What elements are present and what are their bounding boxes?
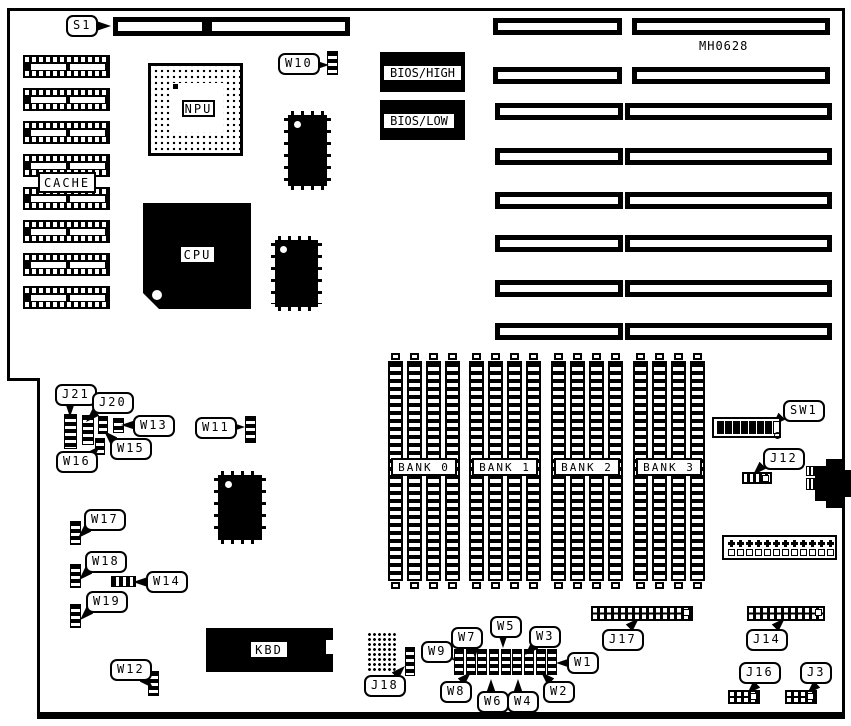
jumper-block: [477, 649, 487, 675]
simm-tab: [429, 353, 438, 360]
dip-chip: [23, 220, 110, 243]
bank-label: BANK 0: [391, 458, 457, 476]
dip-pins: [25, 71, 108, 76]
simm-tab: [510, 353, 519, 360]
callout-pointer: [97, 20, 111, 32]
sw1-switch-cell: [717, 421, 724, 434]
power-pin: [764, 540, 771, 547]
callout-w15: W15: [110, 438, 152, 460]
dip-pins: [25, 203, 108, 208]
dip-pins: [25, 302, 108, 307]
dip-pins: [25, 255, 108, 260]
power-pad: [737, 549, 744, 556]
callout-w10: W10: [278, 53, 320, 75]
dip-pins: [25, 104, 108, 109]
sw1-switch-cell: [741, 421, 748, 434]
callout-w9: W9: [421, 641, 453, 663]
sw1-switch-cell: [749, 421, 756, 434]
header-j14: [747, 606, 825, 621]
simm-tab: [573, 582, 582, 589]
pin1-marker: [683, 609, 690, 616]
callout-w17: W17: [84, 509, 126, 531]
power-pad: [764, 549, 771, 556]
din-pin-block: [806, 466, 815, 476]
callout-w14: W14: [146, 571, 188, 593]
motherboard-diagram: MH0628 NPU CPU BIOS/HIGH BIOS/LOW CACHE: [0, 0, 851, 726]
jumper-block: [64, 414, 77, 449]
bank-label: BANK 3: [636, 458, 702, 476]
dip-slot: [31, 163, 66, 169]
dip-pins: [25, 288, 108, 293]
dip-pins: [25, 137, 108, 142]
dip-slot: [70, 130, 105, 136]
callout-j14: J14: [746, 629, 788, 651]
callout-j12: J12: [763, 448, 805, 470]
simm-tab: [529, 353, 538, 360]
expansion-slot-bar: [625, 192, 832, 209]
dip-slot: [31, 229, 66, 235]
jumper-block: [70, 521, 81, 545]
simm-tab: [448, 353, 457, 360]
keyboard-din-connector: [845, 470, 851, 497]
expansion-slot-bar: [625, 235, 832, 252]
dip-slot: [70, 262, 105, 268]
sw1-switch-cell: [757, 421, 764, 434]
simm-tab: [410, 582, 419, 589]
callout-w18: W18: [85, 551, 127, 573]
bank-label: BANK 1: [472, 458, 538, 476]
expansion-slot-bar: [625, 103, 832, 120]
expansion-slot-bar: [625, 280, 832, 297]
jumper-block: [327, 51, 338, 75]
header-j3: [785, 690, 817, 704]
power-pin: [773, 540, 780, 547]
expansion-slot-bar: [632, 67, 830, 84]
callout-j3: J3: [800, 662, 832, 684]
expansion-slot-bar: [493, 18, 622, 35]
power-pad: [746, 549, 753, 556]
bank-label: BANK 2: [554, 458, 620, 476]
power-pin: [782, 540, 789, 547]
callout-w1: W1: [567, 652, 599, 674]
dip-pins: [25, 269, 108, 274]
simm-tab: [429, 582, 438, 589]
simm-tab: [554, 582, 563, 589]
expansion-slot-bar: [625, 148, 832, 165]
simm-tab: [636, 353, 645, 360]
dip-slot: [31, 196, 66, 202]
callout-w19: W19: [86, 591, 128, 613]
callout-j18: J18: [364, 675, 406, 697]
callout-w6: W6: [477, 691, 509, 713]
expansion-slot-bar: [493, 67, 622, 84]
sw1-switch-cell: [765, 421, 772, 434]
dip-chip: [23, 55, 110, 78]
generated-components: BANK 0BANK 1BANK 2BANK 3S1W10J21J20W13W1…: [0, 0, 851, 726]
jumper-block: [70, 604, 81, 628]
callout-j20: J20: [92, 392, 134, 414]
jumper-block: [113, 418, 124, 433]
dip-slot: [70, 64, 105, 70]
simm-tab: [573, 353, 582, 360]
jumper-block: [111, 576, 136, 587]
sw1-switch-cell: [725, 421, 732, 434]
dip-switch-sw1: [712, 417, 781, 438]
expansion-slot-bar: [495, 323, 623, 340]
expansion-slot-bar: [495, 235, 623, 252]
callout-j21: J21: [55, 384, 97, 406]
power-pad: [800, 549, 807, 556]
keyboard-din-connector: [815, 466, 829, 501]
callout-w11: W11: [195, 417, 237, 439]
sw1-dot: [774, 432, 781, 439]
callout-w12: W12: [110, 659, 152, 681]
header-j12: [742, 472, 772, 484]
expansion-slot-bar: [625, 323, 832, 340]
simm-tab: [391, 353, 400, 360]
power-pin: [746, 540, 753, 547]
header-j16: [728, 690, 760, 704]
simm-tab: [674, 582, 683, 589]
dip-slot: [31, 262, 66, 268]
power-pin: [737, 540, 744, 547]
callout-j17: J17: [602, 629, 644, 651]
power-pin: [800, 540, 807, 547]
dip-slot: [31, 130, 66, 136]
simm-tab: [491, 353, 500, 360]
power-pin: [809, 540, 816, 547]
callout-w2: W2: [543, 681, 575, 703]
dip-chip: [23, 253, 110, 276]
expansion-slot-bar: [495, 148, 623, 165]
dip-chip: [23, 286, 110, 309]
power-connector: [722, 535, 837, 560]
expansion-slot-bar: [632, 18, 830, 35]
power-pad: [827, 549, 834, 556]
simm-tab: [554, 353, 563, 360]
power-pin: [827, 540, 834, 547]
power-pad: [728, 549, 735, 556]
sw1-switch-cell: [733, 421, 740, 434]
jumper-block: [405, 647, 415, 676]
dip-slot: [70, 229, 105, 235]
callout-w13: W13: [133, 415, 175, 437]
dip-slot: [70, 295, 105, 301]
expansion-slot-bar: [495, 103, 623, 120]
simm-bank: BANK 3: [632, 353, 709, 589]
power-pad: [782, 549, 789, 556]
dip-chip: [23, 88, 110, 111]
cache-label: CACHE: [38, 172, 96, 193]
dip-pins: [25, 90, 108, 95]
power-pin: [728, 540, 735, 547]
callout-w8: W8: [440, 681, 472, 703]
power-pad: [773, 549, 780, 556]
power-pad: [809, 549, 816, 556]
jumper-block: [454, 649, 464, 675]
simm-tab: [529, 582, 538, 589]
jumper-block: [98, 416, 108, 434]
simm-tab: [611, 353, 620, 360]
power-pad: [818, 549, 825, 556]
dip-pins: [25, 57, 108, 62]
simm-bank: BANK 2: [550, 353, 627, 589]
callout-w16: W16: [56, 451, 98, 473]
dip-slot: [70, 196, 105, 202]
dip-slot: [31, 97, 66, 103]
callout-w5: W5: [490, 616, 522, 638]
expansion-slot-bar: [495, 192, 623, 209]
simm-tab: [472, 353, 481, 360]
expansion-slot-bar: [495, 280, 623, 297]
simm-tab: [592, 582, 601, 589]
simm-tab: [655, 353, 664, 360]
simm-tab: [674, 353, 683, 360]
callout-j16: J16: [739, 662, 781, 684]
power-pad: [755, 549, 762, 556]
simm-bank: BANK 0: [387, 353, 464, 589]
dip-slot: [70, 97, 105, 103]
pin1-marker: [807, 693, 814, 700]
header-j17: [591, 606, 693, 621]
simm-tab: [510, 582, 519, 589]
dip-slot: [70, 163, 105, 169]
jumper-block: [536, 649, 546, 675]
simm-bank: BANK 1: [468, 353, 545, 589]
dip-pins: [25, 156, 108, 161]
jumper-block: [245, 416, 256, 443]
simm-tab: [655, 582, 664, 589]
pin1-marker: [750, 693, 757, 700]
simm-tab: [693, 582, 702, 589]
simm-tab: [693, 353, 702, 360]
simm-tab: [592, 353, 601, 360]
simm-tab: [448, 582, 457, 589]
simm-tab: [410, 353, 419, 360]
jumper-block: [501, 649, 511, 675]
simm-tab: [611, 582, 620, 589]
callout-s1: S1: [66, 15, 98, 37]
dip-slot: [31, 295, 66, 301]
simm-tab: [636, 582, 645, 589]
dip-chip: [23, 121, 110, 144]
dip-pins: [25, 222, 108, 227]
power-pad: [791, 549, 798, 556]
power-pin: [791, 540, 798, 547]
jumper-block: [489, 649, 499, 675]
jumper-block: [512, 649, 522, 675]
power-pin: [755, 540, 762, 547]
simm-tab: [491, 582, 500, 589]
jumper-block: [70, 564, 81, 588]
power-pin: [818, 540, 825, 547]
callout-w3: W3: [529, 626, 561, 648]
callout-w4: W4: [507, 691, 539, 713]
pin1-marker: [815, 609, 822, 616]
dip-pins: [25, 236, 108, 241]
dip-slot: [31, 64, 66, 70]
simm-tab: [391, 582, 400, 589]
dip-pins: [25, 123, 108, 128]
callout-sw1: SW1: [783, 400, 825, 422]
callout-w7: W7: [451, 627, 483, 649]
simm-tab: [472, 582, 481, 589]
jumper-block: [547, 649, 557, 675]
din-pin-block: [806, 478, 815, 490]
pin1-marker: [762, 475, 769, 482]
